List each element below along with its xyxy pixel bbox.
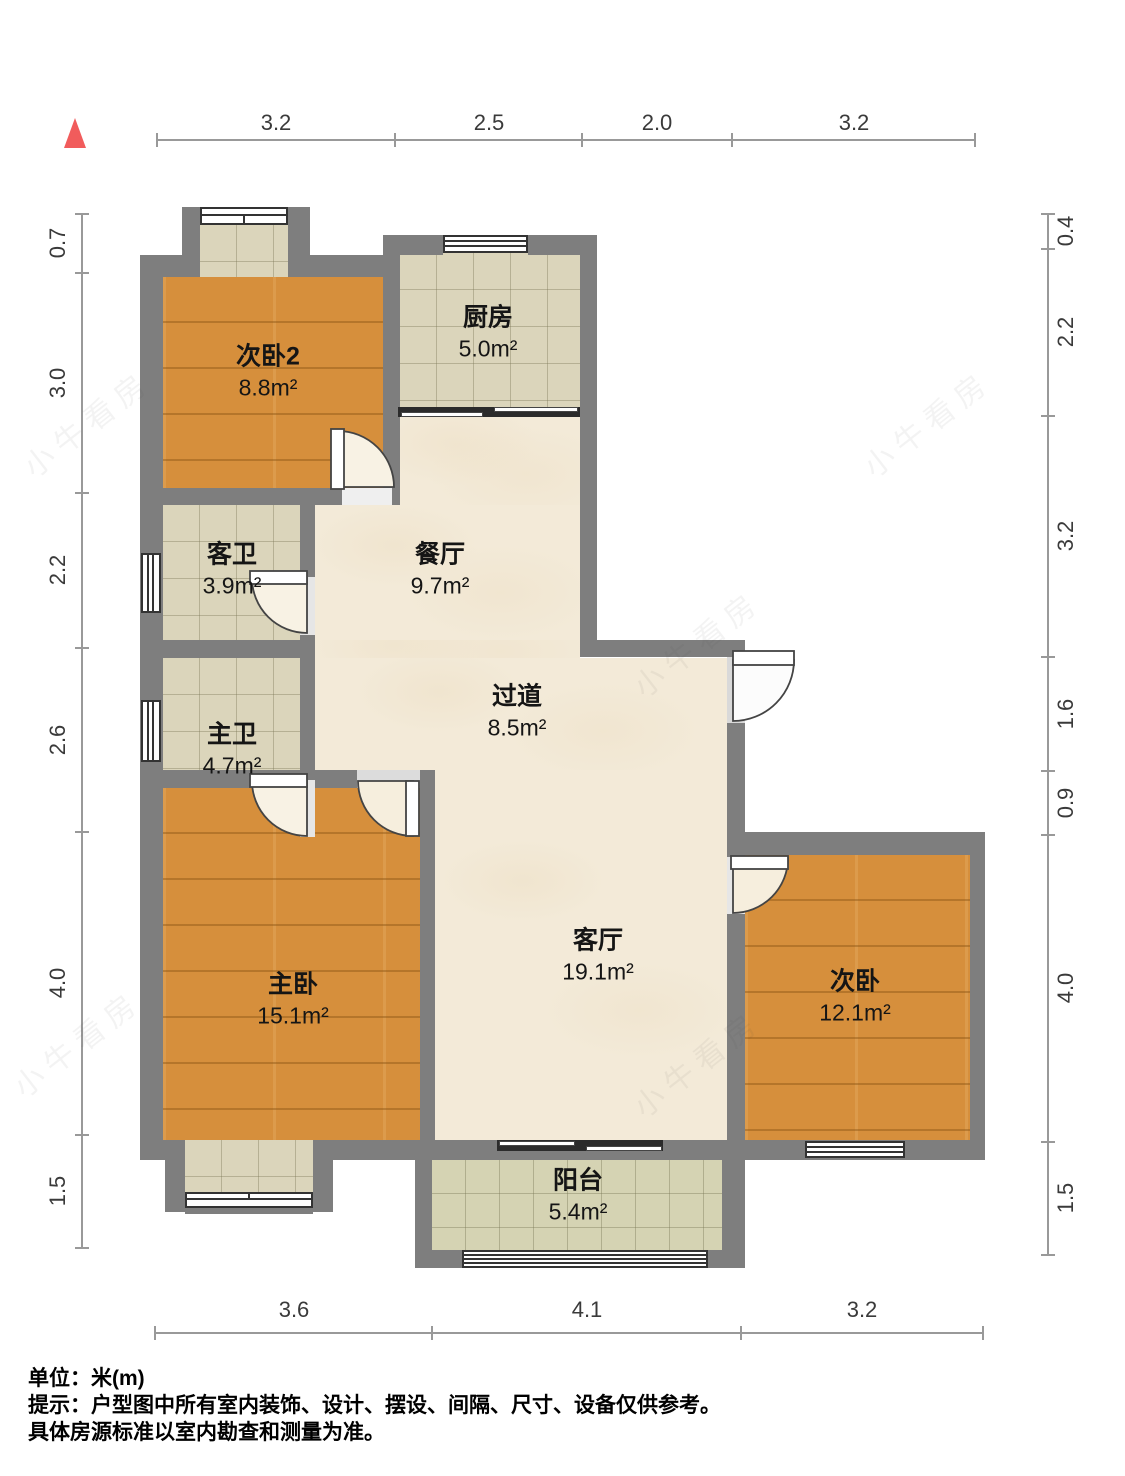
room-label-master-bedroom: 主卧 15.1m² <box>257 970 329 1031</box>
floor-plan: 3.2 2.5 2.0 3.2 3.6 4.1 3.2 0.7 3.0 2.2 … <box>0 0 1125 1476</box>
room-area: 8.8m² <box>236 373 300 403</box>
dim-left-6: 1.5 <box>45 1156 71 1226</box>
dim-bottom-2: 4.1 <box>552 1297 622 1323</box>
room-label-guest-bath: 客卫 3.9m² <box>203 540 262 601</box>
dim-right-4: 1.6 <box>1053 679 1079 749</box>
room-name: 次卧 <box>819 967 891 998</box>
dim-top-3: 2.0 <box>622 110 692 136</box>
room-label-balcony: 阳台 5.4m² <box>549 1166 608 1227</box>
door-leaf-bedroom-right <box>731 856 788 869</box>
dim-left-3: 2.2 <box>45 535 71 605</box>
room-label-bedroom2: 次卧2 8.8m² <box>236 342 300 403</box>
footer-note-line2: 具体房源标准以室内勘查和测量为准。 <box>28 1416 385 1446</box>
door-arc-bedroom2 <box>338 431 394 487</box>
room-area: 19.1m² <box>562 957 634 987</box>
room-name: 主卫 <box>203 720 262 751</box>
door-leaf-entry <box>733 651 794 665</box>
dim-bottom-1: 3.6 <box>259 1297 329 1323</box>
room-area: 15.1m² <box>257 1001 329 1031</box>
dim-left-5: 4.0 <box>45 948 71 1018</box>
room-label-master-bath: 主卫 4.7m² <box>203 720 262 781</box>
door-arc-master-bath <box>252 781 307 836</box>
dim-top-2: 2.5 <box>454 110 524 136</box>
footer-unit-line: 单位：米(m) <box>28 1362 145 1392</box>
room-area: 3.9m² <box>203 571 262 601</box>
room-area: 4.7m² <box>203 751 262 781</box>
room-name: 厨房 <box>459 303 518 334</box>
door-arc-master-bedroom <box>358 781 413 836</box>
room-area: 8.5m² <box>488 713 547 743</box>
dim-right-5: 0.9 <box>1053 768 1079 838</box>
door-arc-entry <box>733 660 794 721</box>
door-leaf-bedroom2 <box>331 429 344 489</box>
room-label-corridor: 过道 8.5m² <box>488 682 547 743</box>
dim-bottom-3: 3.2 <box>827 1297 897 1323</box>
room-name: 次卧2 <box>236 342 300 373</box>
dim-right-3: 3.2 <box>1053 501 1079 571</box>
dim-top-1: 3.2 <box>241 110 311 136</box>
room-name: 阳台 <box>549 1166 608 1197</box>
room-label-bedroom-right: 次卧 12.1m² <box>819 967 891 1028</box>
dim-right-2: 2.2 <box>1053 297 1079 367</box>
dim-right-7: 1.5 <box>1053 1163 1079 1233</box>
room-name: 客厅 <box>562 926 634 957</box>
room-name: 客卫 <box>203 540 262 571</box>
room-area: 9.7m² <box>411 571 470 601</box>
room-name: 过道 <box>488 682 547 713</box>
dim-right-6: 4.0 <box>1053 953 1079 1023</box>
dim-left-1: 0.7 <box>45 208 71 278</box>
north-arrow-icon <box>64 118 86 148</box>
dim-left-4: 2.6 <box>45 705 71 775</box>
room-label-kitchen: 厨房 5.0m² <box>459 303 518 364</box>
dim-top-4: 3.2 <box>819 110 889 136</box>
dim-right-1: 0.4 <box>1053 196 1079 266</box>
footer-note-line1: 提示：户型图中所有室内装饰、设计、摆设、间隔、尺寸、设备仅供参考。 <box>28 1389 721 1419</box>
room-label-living: 客厅 19.1m² <box>562 926 634 987</box>
room-name: 餐厅 <box>411 540 470 571</box>
room-name: 主卧 <box>257 970 329 1001</box>
room-label-dining: 餐厅 9.7m² <box>411 540 470 601</box>
door-leaf-master-bedroom <box>406 781 419 836</box>
plan-symbols <box>0 0 1125 1476</box>
doors <box>250 429 794 913</box>
room-area: 5.0m² <box>459 334 518 364</box>
room-area: 5.4m² <box>549 1197 608 1227</box>
room-area: 12.1m² <box>819 998 891 1028</box>
